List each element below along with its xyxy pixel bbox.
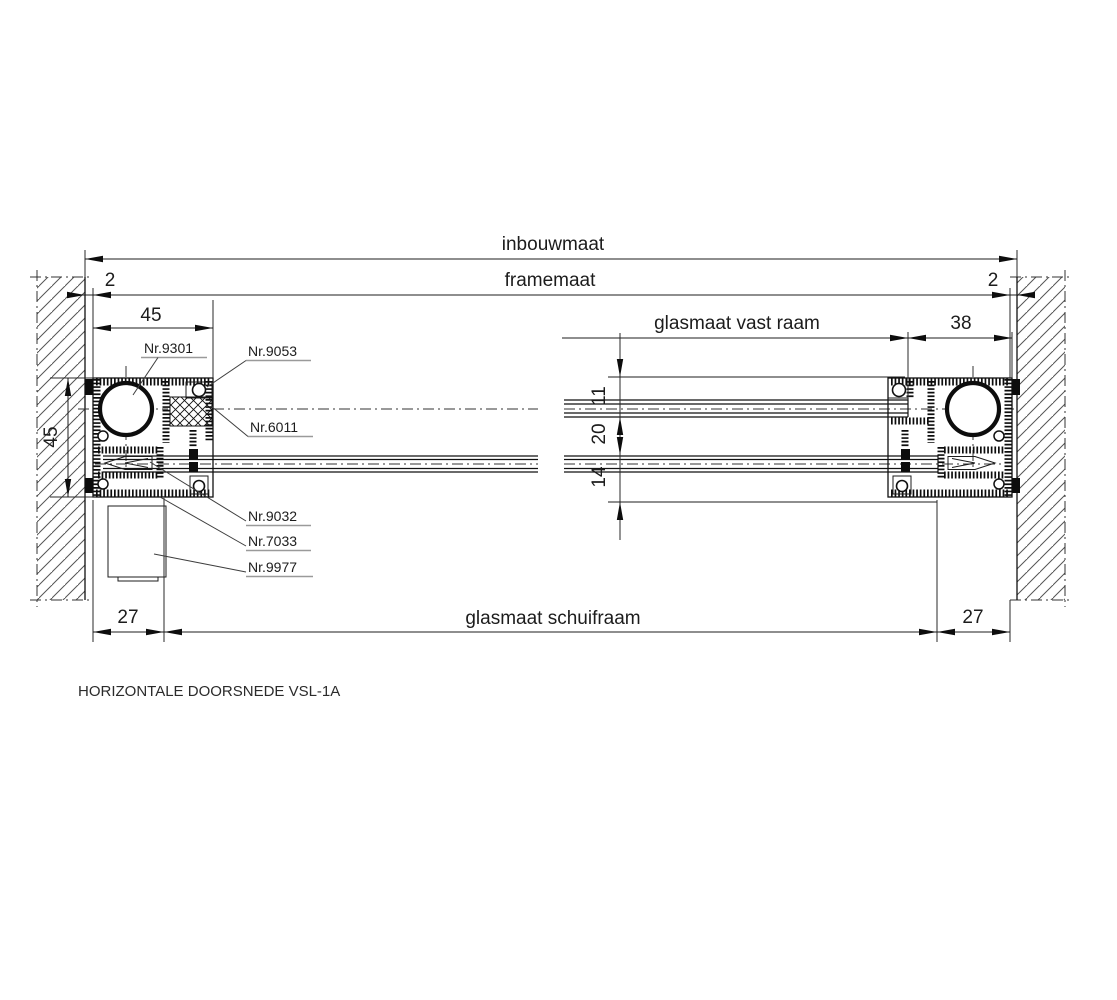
right-omega-gasket-a bbox=[994, 431, 1004, 441]
dimension-framemaat: 2 2 framemaat bbox=[67, 270, 1035, 378]
left-omega-gasket-a bbox=[98, 431, 108, 441]
left-cover-box-foot bbox=[118, 577, 158, 581]
left-interlock-seal-b bbox=[189, 462, 198, 472]
part-9977-leader bbox=[154, 554, 246, 572]
left-round-gasket bbox=[193, 384, 206, 397]
right-wall bbox=[1010, 270, 1072, 607]
glasmaat-vast-raam-label: glasmaat vast raam bbox=[654, 313, 820, 334]
part-7033-text: Nr.7033 bbox=[248, 533, 297, 549]
part-9053-text: Nr.9053 bbox=[248, 343, 297, 359]
dimension-bottom-row: 27 glasmaat schuifraam 27 bbox=[93, 498, 1010, 642]
drawing-title: HORIZONTALE DOORSNEDE VSL-1A bbox=[78, 683, 340, 700]
left-omega-gasket-b bbox=[98, 479, 108, 489]
left-wall-seal-bottom bbox=[85, 478, 93, 493]
part-label-9053: Nr.9053 bbox=[207, 343, 311, 387]
fixed-frame-glass bbox=[564, 398, 908, 417]
technical-drawing-page: inbouwmaat 2 2 framemaat 45 glasmaat vas… bbox=[0, 0, 1117, 1000]
dimension-glasmaat-vast-raam: glasmaat vast raam 38 bbox=[562, 313, 1012, 400]
part-9977-text: Nr.9977 bbox=[248, 559, 297, 575]
frame-width-right-label: 38 bbox=[950, 313, 971, 334]
right-interlock-seal-a bbox=[901, 449, 910, 459]
left-wall-seal-top bbox=[85, 379, 93, 395]
part-label-6011: Nr.6011 bbox=[211, 406, 313, 437]
glass-position-chain: 11 20 14 bbox=[589, 333, 937, 540]
left-cover-box bbox=[108, 506, 166, 577]
fixed-glass-lines bbox=[564, 398, 908, 417]
part-6011-text: Nr.6011 bbox=[250, 419, 298, 435]
right-omega-gasket-b bbox=[994, 479, 1004, 489]
inbouwmaat-label: inbouwmaat bbox=[502, 234, 605, 255]
part-9301-text: Nr.9301 bbox=[144, 340, 193, 356]
part-6011-leader bbox=[211, 406, 248, 437]
right-wall-hatch bbox=[1017, 277, 1065, 600]
overlap-left-label: 27 bbox=[117, 607, 138, 628]
left-glass-clamp-wedge bbox=[105, 457, 152, 470]
right-wall-seal-top bbox=[1012, 379, 1020, 395]
centerlines bbox=[78, 366, 1014, 470]
right-roller bbox=[897, 481, 908, 492]
frame-depth-label: 45 bbox=[41, 426, 62, 447]
overlap-right-label: 27 bbox=[962, 607, 983, 628]
part-label-9977: Nr.9977 bbox=[154, 554, 313, 577]
left-frame-profile bbox=[85, 378, 213, 581]
dimension-45-top: 45 bbox=[93, 300, 213, 378]
part-9032-text: Nr.9032 bbox=[248, 508, 297, 524]
right-reinforcement-tube bbox=[947, 383, 999, 435]
glass-between-label: 20 bbox=[589, 423, 610, 444]
left-insulation-block bbox=[170, 397, 212, 426]
gap-right-label: 2 bbox=[988, 270, 999, 291]
gap-left-label: 2 bbox=[105, 270, 116, 291]
framemaat-extension-lines bbox=[93, 288, 1010, 378]
left-reinforcement-tube bbox=[100, 383, 152, 435]
right-glass-slot bbox=[888, 398, 908, 417]
framemaat-label: framemaat bbox=[505, 270, 597, 291]
glasmaat-schuifraam-label: glasmaat schuifraam bbox=[465, 608, 640, 629]
frame-width-left-label: 45 bbox=[140, 305, 161, 326]
part-7033-leader bbox=[160, 497, 246, 546]
glass-front-label: 11 bbox=[589, 386, 610, 406]
left-interlock-seal-a bbox=[189, 449, 198, 459]
glass-back-label: 14 bbox=[589, 466, 610, 488]
right-interlock-seal-b bbox=[901, 462, 910, 472]
right-wall-seal-bottom bbox=[1012, 478, 1020, 493]
cross-section-drawing: inbouwmaat 2 2 framemaat 45 glasmaat vas… bbox=[0, 0, 1117, 1000]
right-glass-clamp-wedge bbox=[948, 457, 995, 470]
right-round-gasket bbox=[893, 384, 906, 397]
